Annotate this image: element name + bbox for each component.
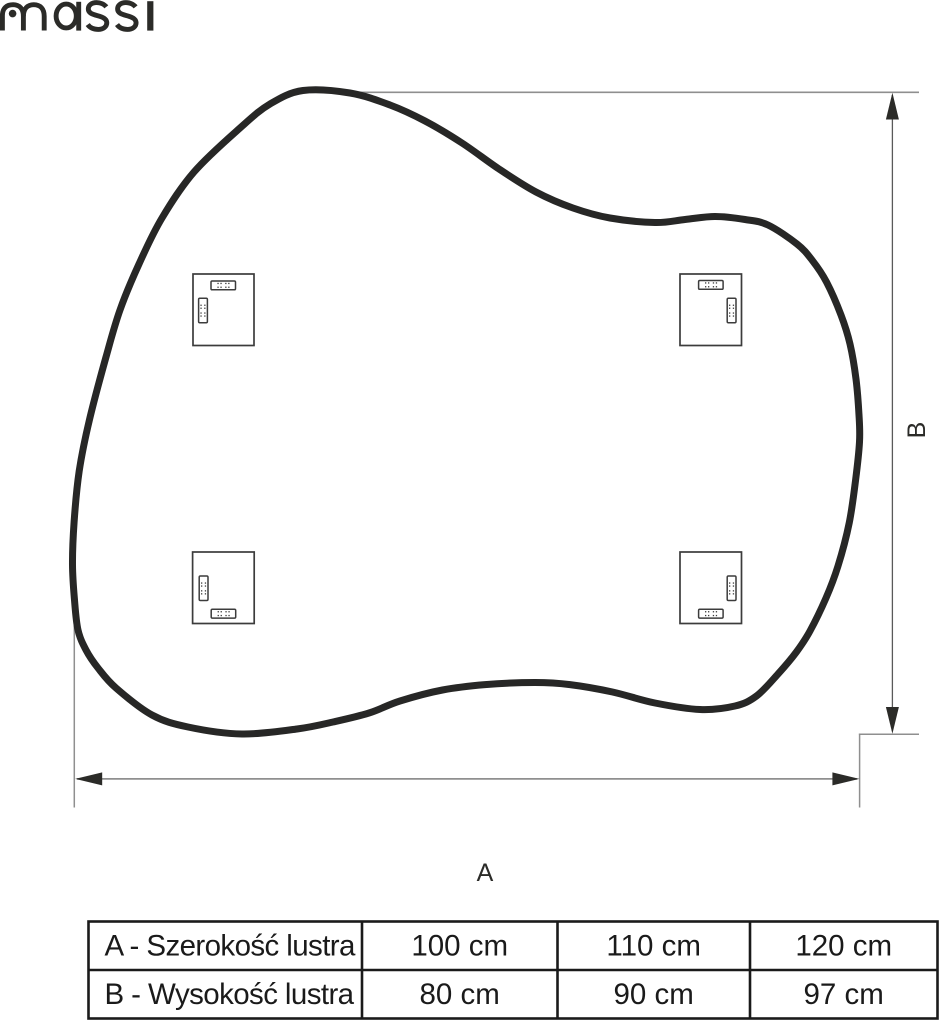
svg-text:100 cm: 100 cm: [411, 930, 508, 963]
svg-text:A - Szerokość lustra: A - Szerokość lustra: [105, 930, 357, 963]
svg-text:80 cm: 80 cm: [420, 978, 500, 1011]
svg-text:B: B: [903, 422, 931, 439]
svg-text:120 cm: 120 cm: [795, 930, 892, 963]
svg-text:B - Wysokość lustra: B - Wysokość lustra: [105, 978, 355, 1011]
svg-text:90 cm: 90 cm: [614, 978, 694, 1011]
svg-text:110 cm: 110 cm: [606, 930, 701, 963]
svg-text:97 cm: 97 cm: [804, 978, 884, 1011]
svg-text:A: A: [477, 859, 494, 887]
